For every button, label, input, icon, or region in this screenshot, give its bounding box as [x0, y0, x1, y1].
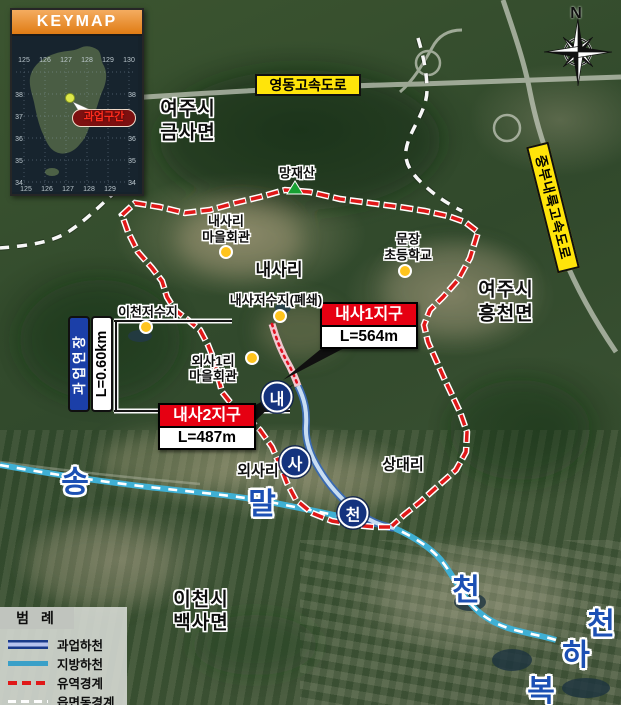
place-naesa-reservoir: 내사저수지(폐쇄): [230, 290, 322, 309]
icheon-reservoir-marker: [140, 321, 152, 333]
project-extent-callout: 과업연장 L=0.60km: [68, 316, 114, 412]
grid-top-2: 127: [60, 57, 72, 64]
place-sangdaeri: 상대리: [382, 454, 423, 475]
keymap-marker-label: 과업구간: [72, 109, 136, 127]
songmalcheon-char-cheon: 천: [452, 565, 480, 609]
keymap-title: KEYMAP: [12, 10, 142, 36]
place-yeoju-geumsa-line2: 금사면: [160, 118, 215, 145]
grid-right-0: 38: [128, 92, 136, 99]
yeongdong-expressway-label: 영동고속도로: [255, 74, 361, 96]
songmalcheon-char-song: 송: [61, 457, 89, 501]
project-site-dot: [66, 94, 75, 103]
jeju-island-shape: [45, 168, 59, 176]
project-extent-title: 과업연장: [68, 316, 90, 412]
place-mangjaesan: 망재산: [279, 163, 315, 182]
grid-bottom-3: 128: [83, 186, 95, 192]
legend-label-project-stream: 과업하천: [57, 635, 103, 654]
legend-label-local-stream: 지방하천: [57, 654, 103, 673]
songmalcheon-char-mal: 말: [248, 479, 276, 523]
grid-bottom-4: 129: [104, 186, 116, 192]
grid-left-1: 37: [15, 114, 23, 121]
place-munjang-school-line2: 초등학교: [384, 245, 432, 264]
grid-right-4: 34: [128, 180, 136, 187]
legend-title: 범 례: [0, 607, 74, 629]
grid-right-3: 35: [128, 158, 136, 165]
grid-bottom-0: 125: [20, 186, 32, 192]
place-icheon-reservoir: 이천저수지: [118, 302, 178, 321]
naesa2-district-callout: 내사2지구 L=487m: [158, 403, 256, 450]
project-extent-length: L=0.60km: [91, 316, 113, 412]
naesa1-district-title: 내사1지구: [322, 304, 416, 325]
grid-left-2: 36: [15, 136, 23, 143]
place-yeoju-heungcheon-line1: 여주시: [478, 275, 533, 302]
place-oesari: 외사리: [237, 460, 278, 481]
place-yeoju-heungcheon-line2: 흥천면: [478, 299, 533, 326]
naesa-reservoir-marker: [274, 310, 286, 322]
naesa2-district-title: 내사2지구: [160, 405, 254, 426]
naesa1-district-length: L=564m: [322, 325, 416, 347]
grid-top-4: 129: [102, 57, 114, 64]
legend-item-local-stream: 지방하천: [8, 654, 123, 673]
naesa1-district-callout: 내사1지구 L=564m: [320, 302, 418, 349]
legend-item-watershed: 유역경계: [8, 673, 123, 692]
naesacheon-circle-sa: 사: [280, 447, 311, 478]
grid-top-1: 126: [39, 57, 51, 64]
local-stream-symbol: [8, 661, 48, 666]
bokhacheon-char-ha: 하: [562, 630, 590, 674]
naesa2-district-length: L=487m: [160, 426, 254, 448]
grid-left-3: 35: [15, 158, 23, 165]
naesacheon-circle-nae: 내: [262, 382, 293, 413]
munjang-school-marker: [399, 265, 411, 277]
legend-label-watershed: 유역경계: [57, 673, 103, 692]
grid-top-0: 125: [18, 57, 30, 64]
naesari-hall-marker: [220, 246, 232, 258]
township-boundary-symbol: [8, 700, 48, 704]
legend-item-project-stream: 과업하천: [8, 635, 123, 654]
grid-bottom-1: 126: [41, 186, 53, 192]
place-naesari: 내사리: [256, 256, 303, 281]
watershed-boundary-symbol: [8, 681, 48, 685]
bokhacheon-char-cheon: 천: [587, 599, 615, 643]
project-location-map: N 영동고속도로 중부내륙고속도로 내사1지구 L=564m 내사2지구 L=4…: [0, 0, 621, 705]
legend-rows: 과업하천 지방하천 유역경계 읍면동경계: [8, 635, 123, 705]
legend-panel: 범 례 과업하천 지방하천 유역경계 읍면동경계: [0, 607, 127, 705]
grid-right-2: 36: [128, 136, 136, 143]
legend-item-township-boundary: 읍면동경계: [8, 692, 123, 705]
grid-left-0: 38: [15, 92, 23, 99]
project-stream-symbol: [8, 640, 48, 649]
place-naesari-hall-line2: 마을회관: [202, 227, 250, 246]
place-oesa1ri-hall-line2: 마을회관: [189, 366, 237, 385]
compass-north-label: N: [570, 5, 582, 22]
bokhacheon-char-bok: 복: [527, 666, 555, 705]
keymap-inset: KEYMAP 125 126 127 128 129 130 38 37 36 …: [10, 8, 144, 196]
legend-label-township-boundary: 읍면동경계: [57, 692, 115, 705]
grid-bottom-2: 127: [62, 186, 74, 192]
grid-top-5: 130: [123, 57, 135, 64]
place-icheon-baeksa-line2: 백사면: [173, 608, 228, 635]
place-yeoju-geumsa-line1: 여주시: [160, 94, 215, 121]
grid-top-3: 128: [81, 57, 93, 64]
oesa1ri-hall-marker: [246, 352, 258, 364]
naesacheon-circle-cheon: 천: [338, 498, 369, 529]
